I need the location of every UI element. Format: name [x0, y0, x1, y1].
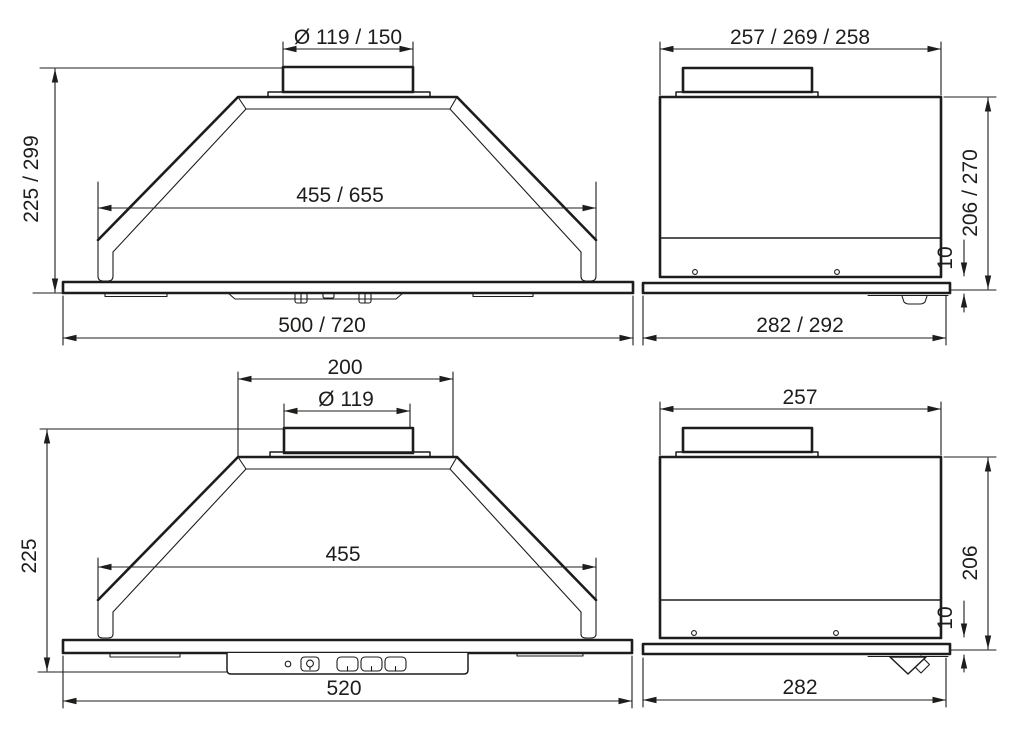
dim-label: 206 / 270: [959, 149, 982, 237]
dim-label: 206: [959, 545, 982, 580]
base-plate: [63, 282, 633, 293]
screw-hole-right: [834, 631, 839, 636]
screw-hole-left: [692, 631, 697, 636]
dim-label: 10: [934, 246, 957, 269]
dim-label: 225 / 299: [20, 135, 43, 223]
hood-inner-slope-right: [450, 109, 581, 252]
hood-inner-slope-left: [113, 469, 246, 612]
dim-label: 455 / 655: [296, 184, 384, 207]
dim-label: 500 / 720: [278, 314, 366, 337]
dim-inner-width-small: 455: [98, 543, 596, 600]
hood-inner-slope-left: [113, 109, 246, 252]
duct-collar: [283, 67, 413, 92]
duct-collar: [683, 428, 812, 452]
hood-inner-slope-right: [450, 469, 581, 612]
dim-label: 10: [934, 606, 957, 629]
base-plate: [63, 640, 632, 653]
side-view-large: 257 / 269 / 258 206 / 270 10 282 / 292: [643, 26, 996, 345]
hood-foot-right: [581, 240, 596, 281]
hood-body: [660, 457, 941, 638]
duct-collar: [284, 428, 413, 453]
hood-outline: [98, 457, 596, 600]
dim-label: 257 / 269 / 258: [730, 26, 870, 49]
dim-label: 520: [326, 677, 361, 700]
hood-dimension-drawing: Ø 119 / 150 225 / 299 455 / 655 500 / 72…: [0, 0, 1024, 744]
dim-label: 200: [327, 356, 362, 379]
dim-label: 282 / 292: [756, 314, 844, 337]
dim-total-width-large: 500 / 720: [63, 296, 633, 345]
dim-label: 225: [18, 538, 41, 573]
hood-inner-top: [238, 97, 457, 109]
dim-duct-diameter-small: Ø 119: [284, 388, 410, 427]
front-view-small: 200 Ø 119 225 455 520: [18, 356, 632, 708]
dim-duct-diameter-large: Ø 119 / 150: [283, 26, 413, 66]
side-view-small: 257 206 10 282: [643, 386, 996, 707]
hood-inner-top: [238, 457, 457, 469]
dim-inner-width-large: 455 / 655: [98, 182, 596, 240]
dim-label: Ø 119 / 150: [294, 26, 402, 49]
front-view-large: Ø 119 / 150 225 / 299 455 / 655 500 / 72…: [20, 26, 633, 345]
hood-foot-left: [98, 600, 113, 638]
duct-collar: [683, 68, 812, 92]
dim-total-depth-large: 282 / 292: [643, 296, 946, 345]
base-plate: [643, 644, 950, 654]
screw-hole-left: [693, 270, 698, 275]
dim-label: 257: [782, 386, 817, 409]
dim-label: Ø 119: [318, 388, 374, 411]
dim-bottom-lip-small: 10: [934, 601, 964, 672]
hood-outline: [98, 97, 596, 240]
filter-strip-right: [473, 293, 533, 297]
screw-hole-right: [835, 270, 840, 275]
hood-foot-right: [581, 600, 596, 638]
dim-top-depth-large: 257 / 269 / 258: [660, 26, 941, 95]
dim-label: 282: [782, 676, 817, 699]
base-plate: [643, 283, 950, 293]
hood-body: [660, 97, 941, 277]
plate-tab: [902, 296, 927, 304]
hood-foot-left: [98, 240, 113, 281]
dim-top-depth-small: 257: [660, 386, 941, 455]
dim-label: 455: [325, 543, 360, 566]
filter-strip-left: [105, 293, 167, 297]
dim-height-large: 225 / 299: [20, 68, 283, 293]
